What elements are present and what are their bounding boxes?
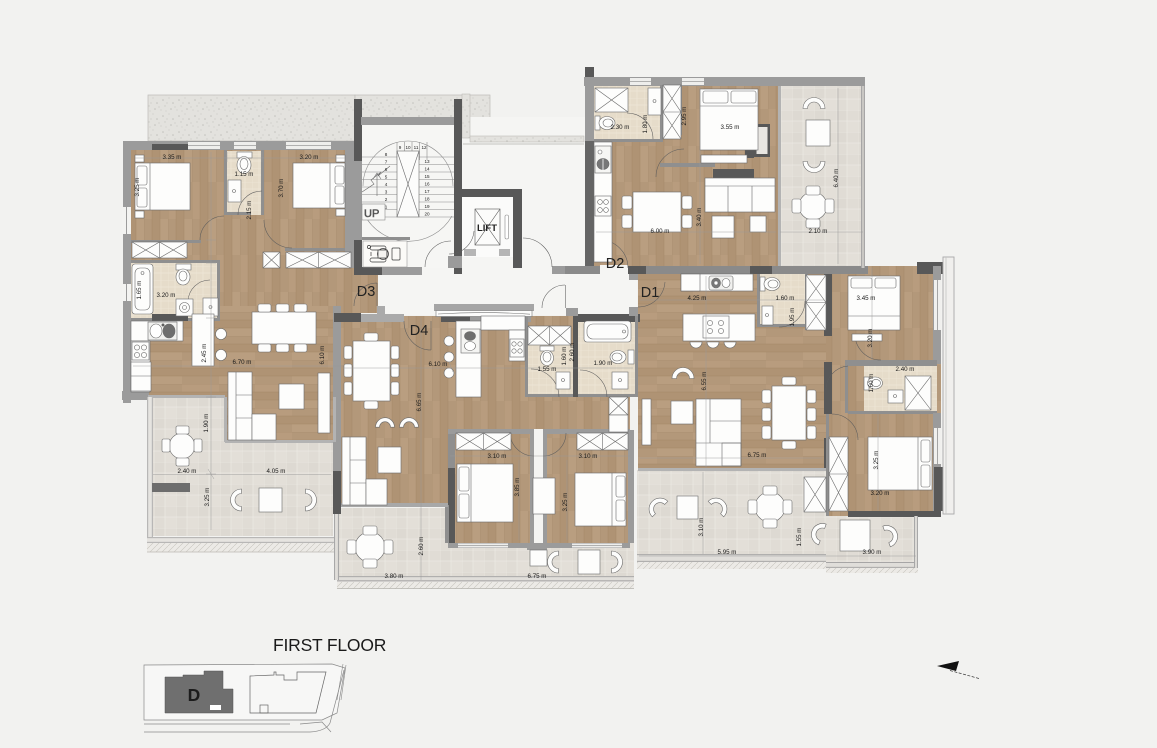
svg-text:6.10 m: 6.10 m (429, 361, 448, 368)
svg-text:1.80 m: 1.80 m (642, 115, 649, 134)
svg-text:D4: D4 (410, 323, 429, 339)
svg-text:D1: D1 (641, 285, 660, 301)
svg-text:3.70 m: 3.70 m (278, 179, 285, 198)
svg-text:3.25 m: 3.25 m (562, 493, 569, 512)
svg-text:3.85 m: 3.85 m (514, 478, 521, 497)
svg-text:5.95 m: 5.95 m (718, 549, 737, 556)
svg-text:2.40 m: 2.40 m (896, 366, 915, 373)
svg-text:2.60 m: 2.60 m (569, 343, 576, 362)
svg-text:7: 7 (385, 160, 388, 165)
svg-text:3.55 m: 3.55 m (721, 124, 740, 131)
svg-text:3.25 m: 3.25 m (873, 451, 880, 470)
svg-text:6.65 m: 6.65 m (416, 393, 423, 412)
svg-text:3.40 m: 3.40 m (696, 208, 703, 227)
svg-text:14: 14 (424, 167, 430, 172)
svg-text:1.15 m: 1.15 m (235, 171, 254, 178)
svg-text:3.25 m: 3.25 m (134, 178, 141, 197)
svg-text:6: 6 (385, 167, 388, 172)
svg-text:5: 5 (385, 175, 388, 180)
svg-text:1.55 m: 1.55 m (796, 528, 803, 547)
svg-text:3.20 m: 3.20 m (871, 490, 890, 497)
svg-text:4: 4 (385, 182, 388, 187)
svg-text:1.60 m: 1.60 m (561, 347, 568, 366)
svg-text:17: 17 (424, 189, 430, 194)
svg-text:3.20 m: 3.20 m (867, 329, 874, 348)
svg-text:6.75 m: 6.75 m (528, 573, 547, 580)
svg-text:FIRST FLOOR: FIRST FLOOR (273, 635, 386, 655)
svg-text:D: D (188, 685, 201, 705)
svg-text:1.65 m: 1.65 m (136, 281, 143, 300)
svg-text:1.60 m: 1.60 m (776, 295, 795, 302)
svg-text:3.10 m: 3.10 m (488, 453, 507, 460)
svg-text:6.70 m: 6.70 m (233, 359, 252, 366)
svg-text:3.20 m: 3.20 m (157, 292, 176, 299)
svg-text:6.55 m: 6.55 m (701, 372, 708, 391)
svg-text:2.40 m: 2.40 m (178, 468, 197, 475)
svg-text:9: 9 (399, 145, 402, 150)
svg-text:2.95 m: 2.95 m (681, 107, 688, 126)
svg-text:LIFT: LIFT (477, 223, 497, 234)
svg-text:3.90 m: 3.90 m (863, 549, 882, 556)
svg-text:4.25 m: 4.25 m (688, 295, 707, 302)
svg-text:1.55 m: 1.55 m (538, 366, 557, 373)
svg-text:8: 8 (385, 152, 388, 157)
svg-text:4.05 m: 4.05 m (267, 468, 286, 475)
svg-text:19: 19 (424, 204, 430, 209)
svg-text:6.00 m: 6.00 m (651, 228, 670, 235)
svg-text:1.90 m: 1.90 m (203, 414, 210, 433)
svg-text:11: 11 (414, 145, 419, 150)
svg-text:2.60 m: 2.60 m (418, 537, 425, 556)
svg-text:3.10 m: 3.10 m (579, 453, 598, 460)
svg-text:15: 15 (424, 174, 430, 179)
svg-text:10: 10 (405, 145, 411, 150)
svg-text:6.40 m: 6.40 m (833, 169, 840, 188)
svg-text:13: 13 (424, 159, 430, 164)
svg-text:D2: D2 (606, 256, 625, 272)
svg-text:2.10 m: 2.10 m (809, 228, 828, 235)
svg-text:1.60 m: 1.60 m (868, 374, 875, 393)
svg-text:18: 18 (424, 197, 430, 202)
svg-text:3.25 m: 3.25 m (204, 488, 211, 507)
svg-text:2.45 m: 2.45 m (201, 344, 208, 363)
svg-text:3: 3 (385, 190, 388, 195)
svg-text:3.10 m: 3.10 m (698, 518, 705, 537)
svg-text:1.90 m: 1.90 m (594, 360, 613, 367)
svg-text:16: 16 (424, 182, 430, 187)
svg-text:2.15 m: 2.15 m (246, 201, 253, 220)
svg-text:3.35 m: 3.35 m (163, 154, 182, 161)
svg-text:UP: UP (364, 208, 379, 220)
svg-text:6.75 m: 6.75 m (748, 452, 767, 459)
svg-text:6.10 m: 6.10 m (319, 346, 326, 365)
svg-text:12: 12 (421, 145, 427, 150)
svg-text:D3: D3 (357, 284, 376, 300)
svg-text:3.45 m: 3.45 m (857, 295, 876, 302)
svg-text:1: 1 (385, 205, 388, 210)
svg-text:2: 2 (385, 197, 388, 202)
svg-text:1.95 m: 1.95 m (789, 308, 796, 327)
svg-text:20: 20 (424, 212, 430, 217)
svg-text:2.30 m: 2.30 m (611, 124, 630, 131)
svg-text:3.80 m: 3.80 m (385, 573, 404, 580)
svg-text:3.20 m: 3.20 m (300, 154, 319, 161)
